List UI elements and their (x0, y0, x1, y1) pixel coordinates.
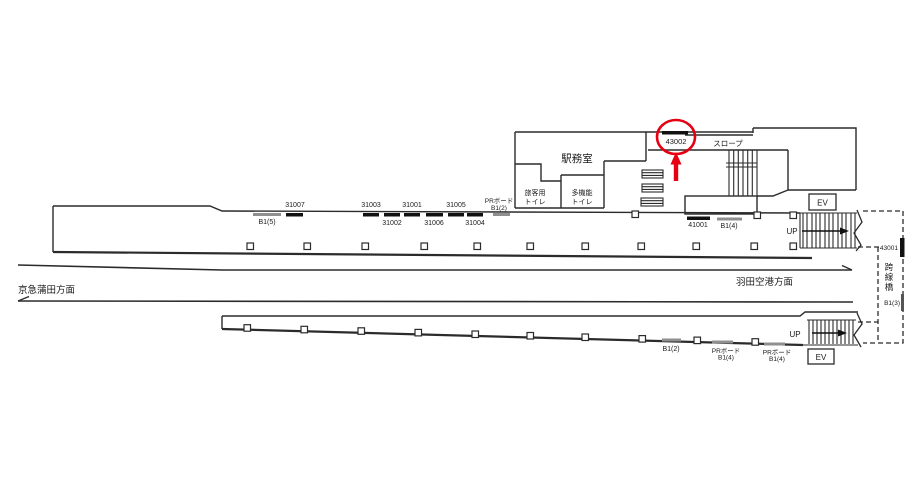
lower-platform-outline (222, 312, 858, 345)
multi-toilet-label-line1: 多機能 (572, 188, 593, 197)
footbridge-outline (858, 211, 903, 343)
track-lines (18, 265, 853, 302)
board-b1-4-marker (717, 218, 742, 221)
board-43001-marker (900, 238, 905, 257)
board-31004-label: 31004 (465, 220, 485, 227)
board-b1-4-label: B1(4) (720, 223, 737, 230)
building-hatched-benches (641, 170, 663, 206)
board-31001-label: 31001 (402, 202, 422, 209)
board-43001-label: 43001 (880, 245, 898, 252)
lower-board-pr2-b1-4-label: B1(4) (769, 356, 785, 363)
direction-kamata-label: 京急蒲田方面 (18, 284, 75, 296)
upper-platform-pillars (247, 243, 797, 250)
building-stair-column (726, 150, 757, 196)
board-31007-marker (286, 213, 303, 217)
slope-label: スロープ (713, 139, 743, 148)
lower-board-pr1-b1-4-label: B1(4) (718, 355, 734, 362)
board-31007-label: 31007 (285, 202, 305, 209)
board-41001-marker (687, 217, 710, 221)
board-31004-marker (467, 213, 483, 217)
upper-up-label: UP (786, 227, 797, 236)
board-pr-b1-2-label: B1(2) (491, 205, 507, 212)
board-31002-label: 31002 (382, 220, 402, 227)
board-31001-marker (404, 213, 420, 217)
board-pr-b1-2-marker (493, 213, 510, 216)
board-31005-label: 31005 (446, 202, 466, 209)
board-43002-marker (662, 131, 688, 135)
station-office-label: 駅務室 (561, 152, 593, 165)
upper-ev-label: EV (817, 199, 828, 208)
lower-board-pr1-marker (712, 341, 733, 344)
upper-board-markers (253, 213, 742, 221)
board-b1-5-label: B1(5) (258, 219, 275, 226)
highlight-arrow (671, 152, 682, 181)
diagram-canvas: 駅務室 旅客用 トイレ 多機能 トイレ スロープ UP EV B1(5) 310… (0, 0, 919, 491)
lower-board-b1-2-marker (662, 339, 681, 342)
board-b1-3-label: B1(3) (884, 300, 900, 307)
lower-stairs-break-mark (854, 313, 862, 347)
board-31003-label: 31003 (361, 202, 381, 209)
board-31003-marker (363, 213, 379, 217)
board-31005-marker (448, 213, 464, 217)
passenger-toilet-label-line1: 旅客用 (525, 188, 546, 197)
lower-board-pr2-marker (764, 343, 785, 346)
board-31006-label: 31006 (424, 220, 444, 227)
multi-toilet-label-line2: トイレ (572, 199, 593, 206)
board-31006-marker (426, 213, 443, 217)
board-b1-3-marker (901, 294, 904, 311)
footbridge-label-char2: 線 (885, 272, 894, 282)
board-b1-5-marker (253, 213, 281, 216)
direction-haneda-label: 羽田空港方面 (736, 276, 793, 288)
board-41001-label: 41001 (688, 222, 708, 229)
passenger-toilet-label-line2: トイレ (525, 199, 546, 206)
board-31002-marker (384, 213, 400, 217)
board-43002-label: 43002 (666, 137, 687, 146)
board-pr-label: PRボード (485, 197, 514, 205)
lower-ev-label: EV (816, 353, 827, 362)
station-platform-diagram: 駅務室 旅客用 トイレ 多機能 トイレ スロープ UP EV B1(5) 310… (0, 0, 919, 491)
lower-up-label: UP (789, 330, 800, 339)
footbridge-label-char3: 橋 (885, 282, 894, 292)
lower-board-b1-2-label: B1(2) (662, 346, 679, 353)
footbridge-label-char1: 跨 (885, 262, 894, 272)
